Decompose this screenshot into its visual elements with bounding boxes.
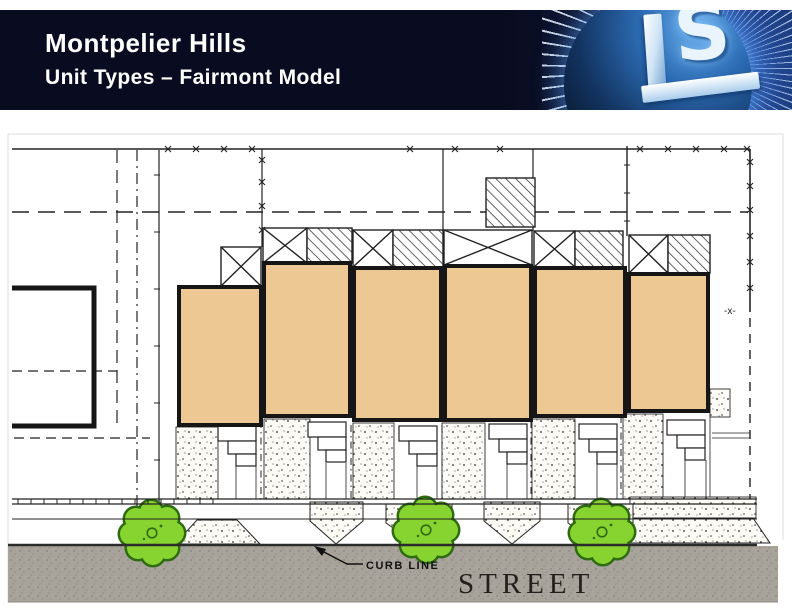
street-band (8, 546, 778, 602)
page-subtitle: Unit Types – Fairmont Model (45, 66, 341, 90)
page-title: Montpelier Hills (45, 28, 247, 59)
boundary-marker-label: -x- (724, 306, 736, 317)
unit-2 (264, 263, 350, 416)
curb-line-label: CURB LINE (366, 560, 439, 572)
logo-letter-s: S (671, 10, 734, 74)
unit-5 (535, 268, 625, 416)
unit-4 (445, 266, 531, 420)
slide: { "slide": { "title": "Montpelier Hills"… (0, 0, 792, 612)
unit-1 (179, 287, 261, 425)
unit-3 (354, 268, 441, 420)
slide-header: S Montpelier Hills Unit Types – Fairmont… (0, 10, 792, 110)
unit-6 (629, 274, 708, 411)
existing-building-outline (12, 288, 94, 426)
ls-logo: S (542, 10, 792, 110)
street-label: STREET (458, 568, 594, 600)
unit-row (179, 263, 708, 425)
